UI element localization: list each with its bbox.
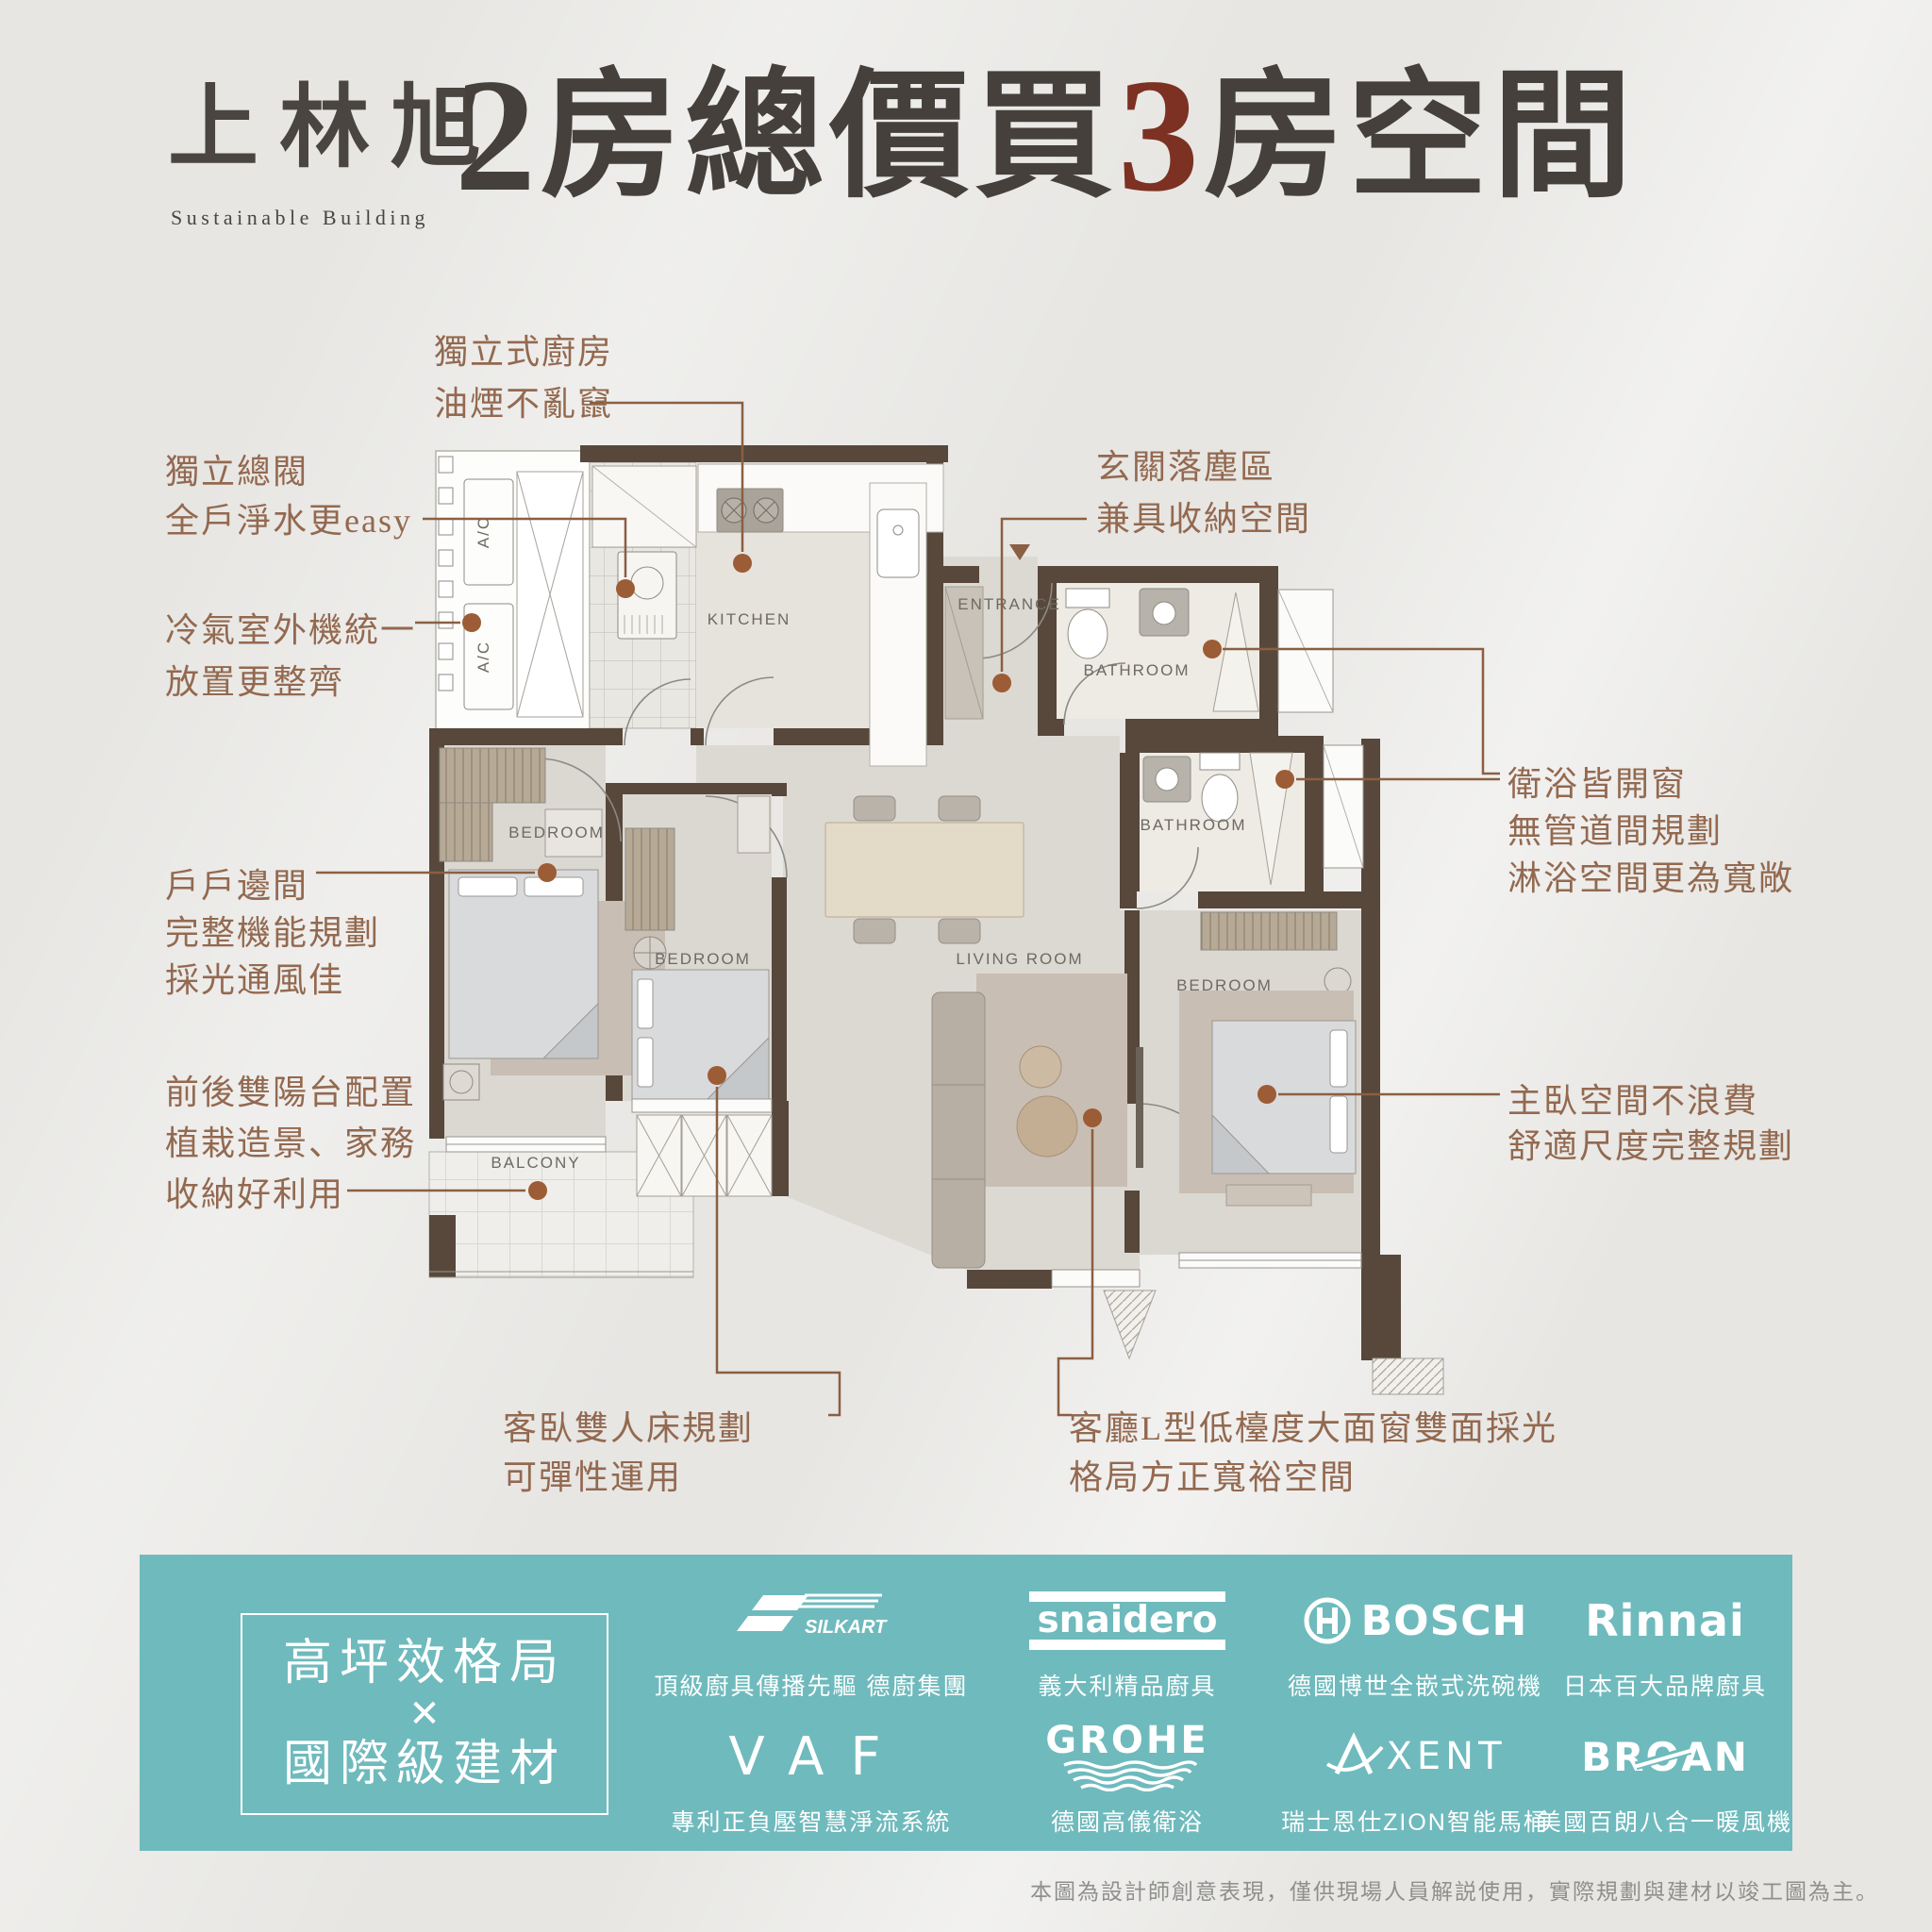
brand-tagline: 美國百朗八合一暖風機 — [1538, 1804, 1792, 1838]
broan-pre: BR — [1581, 1734, 1645, 1780]
rinnai-wordmark: Rinnai — [1585, 1595, 1745, 1646]
brand-tagline: 專利正負壓智慧淨流系統 — [671, 1804, 951, 1838]
silkart-wordmark: SILKART — [805, 1617, 888, 1638]
annotation-line: 格局方正寬裕空間 — [1069, 1453, 1557, 1502]
annotation-line: 全戶淨水更easy — [165, 496, 412, 545]
annotation-kitchen: 獨立式廚房 油煙不亂竄 — [434, 326, 613, 430]
leader-dots — [462, 554, 1294, 1200]
silkart-logo-icon: SILKART — [731, 1581, 891, 1660]
brand-banner: 高坪效格局 ✕ 國際級建材 SILKART 頂級廚具傳播先驅 德廚集團 snai… — [140, 1555, 1792, 1851]
axent-a-icon — [1324, 1730, 1386, 1783]
annotation-line: 前後雙陽台配置 — [165, 1067, 416, 1118]
annotation-line: 獨立總閥 — [165, 447, 412, 496]
annotation-line: 放置更整齊 — [165, 657, 416, 708]
annotation-line: 淋浴空間更為寬敞 — [1507, 855, 1794, 902]
vaf-wordmark: VAF — [715, 1726, 907, 1788]
brand-tagline: 德國博世全嵌式洗碗機 — [1288, 1668, 1542, 1702]
annotation-line: 收納好利用 — [165, 1169, 416, 1220]
annotation-line: 戶戶邊間 — [165, 862, 380, 909]
annotation-corner: 戶戶邊間 完整機能規劃 採光通風佳 — [165, 862, 380, 1004]
annotation-bath: 衛浴皆開窗 無管道間規劃 淋浴空間更為寬敞 — [1507, 760, 1794, 902]
broan-wordmark: BROAN — [1581, 1734, 1749, 1780]
annotation-line: 無管道間規劃 — [1507, 808, 1794, 855]
broan-slashed-o: O — [1645, 1734, 1681, 1780]
annotation-line: 採光通風佳 — [165, 957, 380, 1004]
brand-rinnai: Rinnai 日本百大品牌廚具 — [1542, 1581, 1788, 1702]
grohe-waves-icon — [1057, 1759, 1198, 1791]
annotation-line: 客臥雙人床規劃 — [503, 1404, 754, 1453]
annotation-entry: 玄關落塵區 兼具收納空間 — [1096, 441, 1311, 545]
brand-tagline: 瑞士恩仕ZION智能馬桶 — [1281, 1804, 1549, 1838]
bosch-wordmark: BOSCH — [1361, 1597, 1528, 1645]
brand-tagline: 頂級廚具傳播先驅 德廚集團 — [655, 1668, 969, 1702]
slogan-box: 高坪效格局 ✕ 國際級建材 — [241, 1613, 608, 1815]
brand-vaf: VAF 專利正負壓智慧淨流系統 — [660, 1717, 962, 1838]
snaidero-logo: snaidero — [1029, 1591, 1224, 1651]
annotation-line: 衛浴皆開窗 — [1507, 760, 1794, 808]
annotation-line: 主臥空間不浪費 — [1507, 1078, 1794, 1124]
slogan-line-1: 高坪效格局 — [283, 1633, 566, 1694]
annotation-master: 主臥空間不浪費 舒適尺度完整規劃 — [1507, 1078, 1794, 1169]
axent-wordmark: XENT — [1386, 1735, 1506, 1778]
annotation-guest: 客臥雙人床規劃 可彈性運用 — [503, 1404, 754, 1502]
annotation-line: 獨立式廚房 — [434, 326, 613, 378]
annotation-line: 玄關落塵區 — [1096, 441, 1311, 493]
brand-broan: BROAN 美國百朗八合一暖風機 — [1542, 1717, 1788, 1838]
brand-silkart: SILKART 頂級廚具傳播先驅 德廚集團 — [660, 1581, 962, 1702]
annotation-line: 可彈性運用 — [503, 1453, 754, 1502]
annotation-valve: 獨立總閥 全戶淨水更easy — [165, 447, 412, 545]
brand-snaidero: snaidero 義大利精品廚具 — [976, 1581, 1278, 1702]
slogan-times-icon: ✕ — [408, 1694, 441, 1734]
broan-post: AN — [1681, 1734, 1749, 1780]
annotation-line: 客廳L型低檯度大面窗雙面採光 — [1069, 1404, 1557, 1453]
brand-tagline: 日本百大品牌廚具 — [1563, 1668, 1767, 1702]
brand-grohe: GROHE 德國高儀衛浴 — [976, 1717, 1278, 1838]
annotation-line: 兼具收納空間 — [1096, 493, 1311, 545]
slogan-line-2: 國際級建材 — [283, 1734, 566, 1795]
brand-axent: XENT 瑞士恩仕ZION智能馬桶 — [1264, 1717, 1566, 1838]
annotation-line: 植栽造景、家務 — [165, 1118, 416, 1169]
grohe-wordmark: GROHE — [1045, 1722, 1208, 1759]
annotation-balcony: 前後雙陽台配置 植栽造景、家務 收納好利用 — [165, 1067, 416, 1220]
annotation-line: 舒適尺度完整規劃 — [1507, 1124, 1794, 1169]
entry-direction-triangle — [1009, 544, 1030, 560]
brand-tagline: 義大利精品廚具 — [1038, 1668, 1216, 1702]
annotation-line: 油煙不亂竄 — [434, 378, 613, 430]
disclaimer-text: 本圖為設計師創意表現，僅供現場人員解説使用，實際規劃與建材以竣工圖為主。 — [1030, 1874, 1879, 1906]
annotation-ac: 冷氣室外機統一 放置更整齊 — [165, 605, 416, 708]
brand-bosch: BOSCH 德國博世全嵌式洗碗機 — [1264, 1581, 1566, 1702]
bosch-anchor-icon — [1303, 1596, 1352, 1645]
annotation-line: 完整機能規劃 — [165, 909, 380, 957]
annotation-livingroom: 客廳L型低檯度大面窗雙面採光 格局方正寬裕空間 — [1069, 1404, 1557, 1502]
annotation-line: 冷氣室外機統一 — [165, 605, 416, 657]
brand-tagline: 德國高儀衛浴 — [1051, 1804, 1204, 1838]
